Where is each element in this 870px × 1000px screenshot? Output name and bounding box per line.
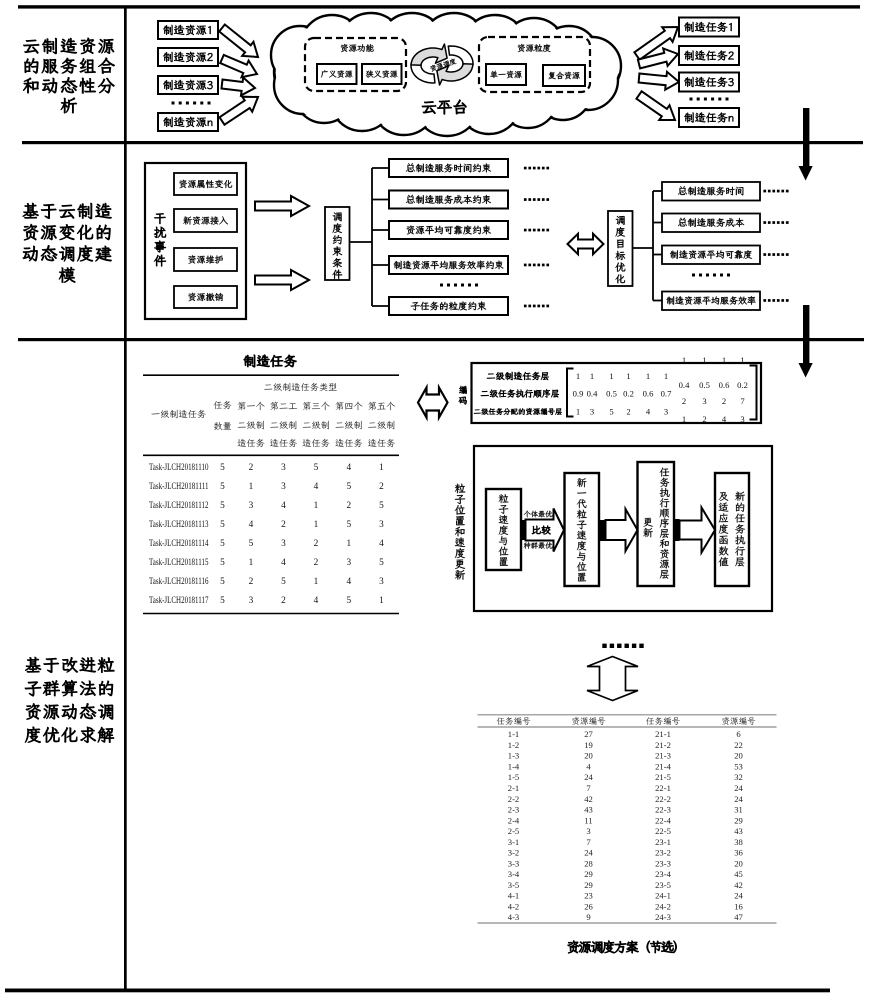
svg-text:1: 1: [314, 577, 319, 587]
svg-text:0.9: 0.9: [573, 389, 584, 399]
svg-text:4: 4: [722, 414, 727, 424]
svg-text:3: 3: [590, 407, 594, 417]
svg-text:5: 5: [220, 558, 225, 568]
svg-text:21-3: 21-3: [655, 751, 671, 761]
svg-text:24: 24: [584, 848, 593, 858]
svg-text:2: 2: [281, 596, 286, 606]
svg-text:22-1: 22-1: [655, 783, 671, 793]
svg-text:1: 1: [379, 463, 384, 473]
svg-text:Task-JLCH20181116: Task-JLCH20181116: [149, 577, 209, 587]
svg-text:1: 1: [249, 482, 254, 492]
svg-text:3-1: 3-1: [508, 837, 519, 847]
svg-text:2-3: 2-3: [508, 805, 519, 815]
svg-text:43: 43: [734, 826, 743, 836]
svg-text:29: 29: [584, 869, 593, 879]
svg-text:5: 5: [220, 501, 225, 511]
svg-text:4-1: 4-1: [508, 891, 519, 901]
svg-text:2-5: 2-5: [508, 826, 519, 836]
svg-text:23-1: 23-1: [655, 837, 671, 847]
svg-text:Task-JLCH20181112: Task-JLCH20181112: [149, 501, 209, 511]
svg-text:7: 7: [740, 396, 745, 406]
svg-text:1: 1: [646, 371, 650, 381]
svg-text:Task-JLCH20181113: Task-JLCH20181113: [149, 520, 209, 530]
svg-text:5: 5: [281, 577, 286, 587]
svg-text:27: 27: [584, 729, 593, 739]
svg-text:Task-JLCH20181110: Task-JLCH20181110: [149, 463, 209, 473]
svg-text:3: 3: [249, 501, 254, 511]
svg-text:24: 24: [734, 783, 743, 793]
svg-text:5: 5: [314, 463, 319, 473]
svg-text:1: 1: [590, 371, 594, 381]
svg-text:2: 2: [702, 414, 706, 424]
svg-text:2: 2: [249, 463, 254, 473]
svg-text:1-1: 1-1: [508, 729, 519, 739]
svg-text:3: 3: [346, 558, 351, 568]
svg-text:1: 1: [664, 371, 668, 381]
svg-text:4: 4: [586, 762, 591, 772]
svg-text:5: 5: [379, 558, 384, 568]
svg-text:0.2: 0.2: [623, 389, 634, 399]
svg-text:1-5: 1-5: [508, 772, 519, 782]
svg-text:1: 1: [379, 596, 384, 606]
svg-text:21-4: 21-4: [655, 762, 671, 772]
svg-text:9: 9: [586, 912, 590, 922]
svg-text:5: 5: [249, 539, 254, 549]
svg-text:21-2: 21-2: [655, 740, 671, 750]
svg-text:24-2: 24-2: [655, 901, 671, 911]
svg-text:3: 3: [379, 577, 384, 587]
svg-text:5: 5: [220, 482, 225, 492]
svg-text:26: 26: [584, 901, 593, 911]
svg-text:4: 4: [249, 520, 254, 530]
svg-text:16: 16: [734, 901, 743, 911]
svg-text:2: 2: [249, 577, 254, 587]
svg-text:5: 5: [609, 407, 613, 417]
svg-text:1: 1: [740, 355, 744, 365]
svg-text:2: 2: [626, 407, 630, 417]
svg-text:1: 1: [722, 355, 726, 365]
svg-text:2: 2: [281, 520, 286, 530]
svg-text:31: 31: [734, 805, 743, 815]
svg-text:20: 20: [734, 858, 743, 868]
svg-text:2: 2: [314, 558, 319, 568]
svg-text:2-4: 2-4: [508, 815, 520, 825]
svg-text:5: 5: [346, 596, 351, 606]
svg-text:2: 2: [346, 501, 351, 511]
svg-text:24: 24: [734, 794, 743, 804]
svg-text:3-4: 3-4: [508, 869, 520, 879]
svg-text:24-3: 24-3: [655, 912, 671, 922]
svg-text:3-2: 3-2: [508, 848, 519, 858]
svg-text:3: 3: [249, 596, 254, 606]
svg-text:23-3: 23-3: [655, 858, 671, 868]
svg-text:0.4: 0.4: [587, 389, 598, 399]
svg-text:Task-JLCH20181117: Task-JLCH20181117: [149, 596, 209, 606]
svg-text:5: 5: [220, 463, 225, 473]
svg-text:23-2: 23-2: [655, 848, 671, 858]
svg-text:3: 3: [586, 826, 590, 836]
svg-text:3-5: 3-5: [508, 880, 519, 890]
svg-text:4: 4: [314, 482, 319, 492]
svg-text:0.6: 0.6: [719, 380, 730, 390]
svg-text:24-1: 24-1: [655, 891, 671, 901]
svg-text:0.7: 0.7: [661, 389, 672, 399]
svg-text:38: 38: [734, 837, 743, 847]
svg-text:3: 3: [281, 539, 286, 549]
svg-text:4: 4: [281, 558, 286, 568]
svg-text:1: 1: [314, 501, 319, 511]
svg-text:7: 7: [586, 783, 591, 793]
svg-text:3-3: 3-3: [508, 858, 519, 868]
svg-text:2: 2: [379, 482, 384, 492]
svg-text:0.5: 0.5: [699, 380, 710, 390]
svg-text:7: 7: [586, 837, 591, 847]
svg-text:23-4: 23-4: [655, 869, 671, 879]
svg-text:21-1: 21-1: [655, 729, 671, 739]
svg-text:1: 1: [609, 371, 613, 381]
svg-text:1: 1: [249, 558, 254, 568]
svg-text:1: 1: [682, 414, 686, 424]
svg-text:5: 5: [220, 596, 225, 606]
svg-text:45: 45: [734, 869, 743, 879]
svg-text:24: 24: [734, 891, 743, 901]
svg-text:1: 1: [314, 520, 319, 530]
svg-text:1: 1: [346, 539, 351, 549]
svg-text:1-4: 1-4: [508, 762, 520, 772]
svg-text:4: 4: [314, 596, 319, 606]
svg-text:0.2: 0.2: [737, 380, 748, 390]
svg-text:5: 5: [220, 520, 225, 530]
svg-text:1-2: 1-2: [508, 740, 519, 750]
svg-text:24: 24: [584, 772, 593, 782]
svg-text:22-3: 22-3: [655, 805, 671, 815]
svg-text:21-5: 21-5: [655, 772, 671, 782]
svg-text:5: 5: [220, 539, 225, 549]
svg-text:42: 42: [584, 794, 593, 804]
svg-text:4-2: 4-2: [508, 901, 519, 911]
svg-text:5: 5: [346, 520, 351, 530]
svg-text:23-5: 23-5: [655, 880, 671, 890]
svg-text:28: 28: [584, 858, 593, 868]
svg-text:3: 3: [281, 463, 286, 473]
svg-text:1: 1: [576, 407, 580, 417]
svg-text:3: 3: [281, 482, 286, 492]
svg-text:0.5: 0.5: [606, 389, 617, 399]
svg-text:29: 29: [584, 880, 593, 890]
svg-text:2: 2: [682, 396, 686, 406]
svg-text:6: 6: [736, 729, 741, 739]
svg-text:23: 23: [584, 891, 593, 901]
svg-text:Task-JLCH20181111: Task-JLCH20181111: [149, 482, 209, 492]
svg-text:Task-JLCH20181115: Task-JLCH20181115: [149, 558, 209, 568]
svg-text:1: 1: [682, 355, 686, 365]
svg-text:1-3: 1-3: [508, 751, 519, 761]
svg-text:4: 4: [346, 577, 351, 587]
svg-text:5: 5: [346, 482, 351, 492]
svg-text:5: 5: [220, 577, 225, 587]
svg-text:32: 32: [734, 772, 743, 782]
svg-text:4: 4: [281, 501, 286, 511]
svg-text:19: 19: [584, 740, 593, 750]
svg-text:22-5: 22-5: [655, 826, 671, 836]
svg-text:1: 1: [626, 371, 630, 381]
svg-text:Task-JLCH20181114: Task-JLCH20181114: [149, 539, 209, 549]
svg-text:20: 20: [584, 751, 593, 761]
svg-text:4: 4: [646, 407, 651, 417]
svg-text:43: 43: [584, 805, 593, 815]
svg-text:42: 42: [734, 880, 743, 890]
svg-text:3: 3: [379, 520, 384, 530]
svg-text:1: 1: [702, 355, 706, 365]
svg-text:4-3: 4-3: [508, 912, 519, 922]
svg-text:22-2: 22-2: [655, 794, 671, 804]
svg-text:22-4: 22-4: [655, 815, 671, 825]
svg-text:20: 20: [734, 751, 743, 761]
svg-text:4: 4: [379, 539, 384, 549]
svg-text:2-2: 2-2: [508, 794, 519, 804]
svg-text:0.4: 0.4: [679, 380, 690, 390]
svg-text:3: 3: [702, 396, 706, 406]
svg-text:5: 5: [379, 501, 384, 511]
svg-text:29: 29: [734, 815, 743, 825]
svg-text:2: 2: [314, 539, 319, 549]
svg-text:2-1: 2-1: [508, 783, 519, 793]
svg-text:36: 36: [734, 848, 743, 858]
svg-text:3: 3: [664, 407, 668, 417]
svg-text:22: 22: [734, 740, 743, 750]
svg-text:2: 2: [722, 396, 726, 406]
svg-text:3: 3: [740, 414, 744, 424]
svg-text:47: 47: [734, 912, 743, 922]
svg-text:4: 4: [346, 463, 351, 473]
svg-text:0.6: 0.6: [643, 389, 654, 399]
svg-text:53: 53: [734, 762, 743, 772]
svg-text:11: 11: [584, 815, 592, 825]
svg-text:1: 1: [576, 371, 580, 381]
